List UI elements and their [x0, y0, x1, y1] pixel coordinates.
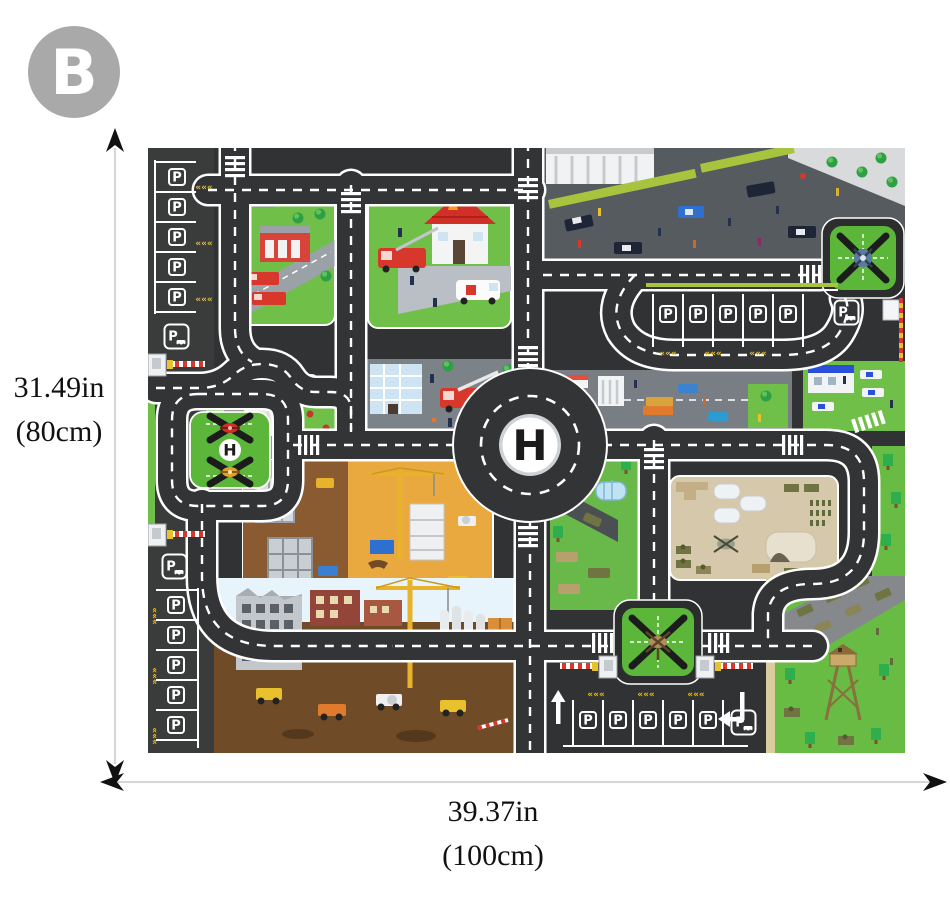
- helipad-left: H: [190, 412, 270, 488]
- army-tent-icon: [766, 532, 816, 562]
- width-inches: 39.37in: [373, 790, 613, 834]
- svg-text:P: P: [613, 714, 623, 729]
- svg-text:P: P: [783, 308, 793, 323]
- roundabout: H: [453, 368, 607, 522]
- height-inches: 31.49in: [0, 366, 118, 410]
- drone-icon: [854, 249, 872, 267]
- svg-text:P: P: [703, 714, 713, 729]
- svg-text:«««: «««: [149, 607, 159, 624]
- svg-text:P: P: [171, 599, 181, 614]
- svg-text:«««: «««: [704, 349, 721, 359]
- svg-text:P: P: [583, 714, 593, 729]
- svg-text:«««: «««: [195, 183, 212, 193]
- svg-text:«««: «««: [149, 667, 159, 684]
- svg-text:P: P: [172, 201, 182, 216]
- svg-text:«««: «««: [587, 690, 604, 700]
- svg-text:«««: «««: [195, 295, 212, 305]
- svg-text:«««: «««: [149, 727, 159, 744]
- svg-text:P: P: [663, 308, 673, 323]
- police-station-scene: [803, 361, 905, 433]
- svg-text:P: P: [723, 308, 733, 323]
- helipad-bottom: [614, 600, 702, 684]
- svg-text:P: P: [172, 261, 182, 276]
- svg-text:P: P: [172, 231, 182, 246]
- construction-site-bottom: [214, 578, 514, 753]
- svg-text:P: P: [171, 629, 181, 644]
- svg-text:«««: «««: [637, 690, 654, 700]
- svg-text:P: P: [693, 308, 703, 323]
- svg-text:«««: «««: [749, 349, 766, 359]
- svg-text:P: P: [172, 171, 182, 186]
- military-base-block: [670, 476, 838, 580]
- width-cm: (100cm): [373, 834, 613, 878]
- svg-text:P: P: [171, 719, 181, 734]
- svg-text:P: P: [673, 714, 683, 729]
- svg-text:P: P: [171, 689, 181, 704]
- svg-text:P: P: [753, 308, 763, 323]
- height-dimension-label: 31.49in (80cm): [0, 366, 118, 454]
- svg-text:P: P: [643, 714, 653, 729]
- roundabout-helipad-letter: H: [512, 421, 547, 470]
- svg-text:P: P: [172, 291, 182, 306]
- svg-text:«««: «««: [195, 239, 212, 249]
- play-mat: P: [148, 148, 905, 753]
- height-cm: (80cm): [0, 410, 118, 454]
- product-dimension-image: B 31.49in (80cm) 39.37in (100cm): [0, 0, 950, 898]
- svg-text:«««: «««: [659, 349, 676, 359]
- svg-text:P: P: [171, 659, 181, 674]
- svg-text:«««: «««: [687, 690, 704, 700]
- helipad-letter: H: [223, 441, 236, 460]
- width-dimension-label: 39.37in (100cm): [373, 790, 613, 878]
